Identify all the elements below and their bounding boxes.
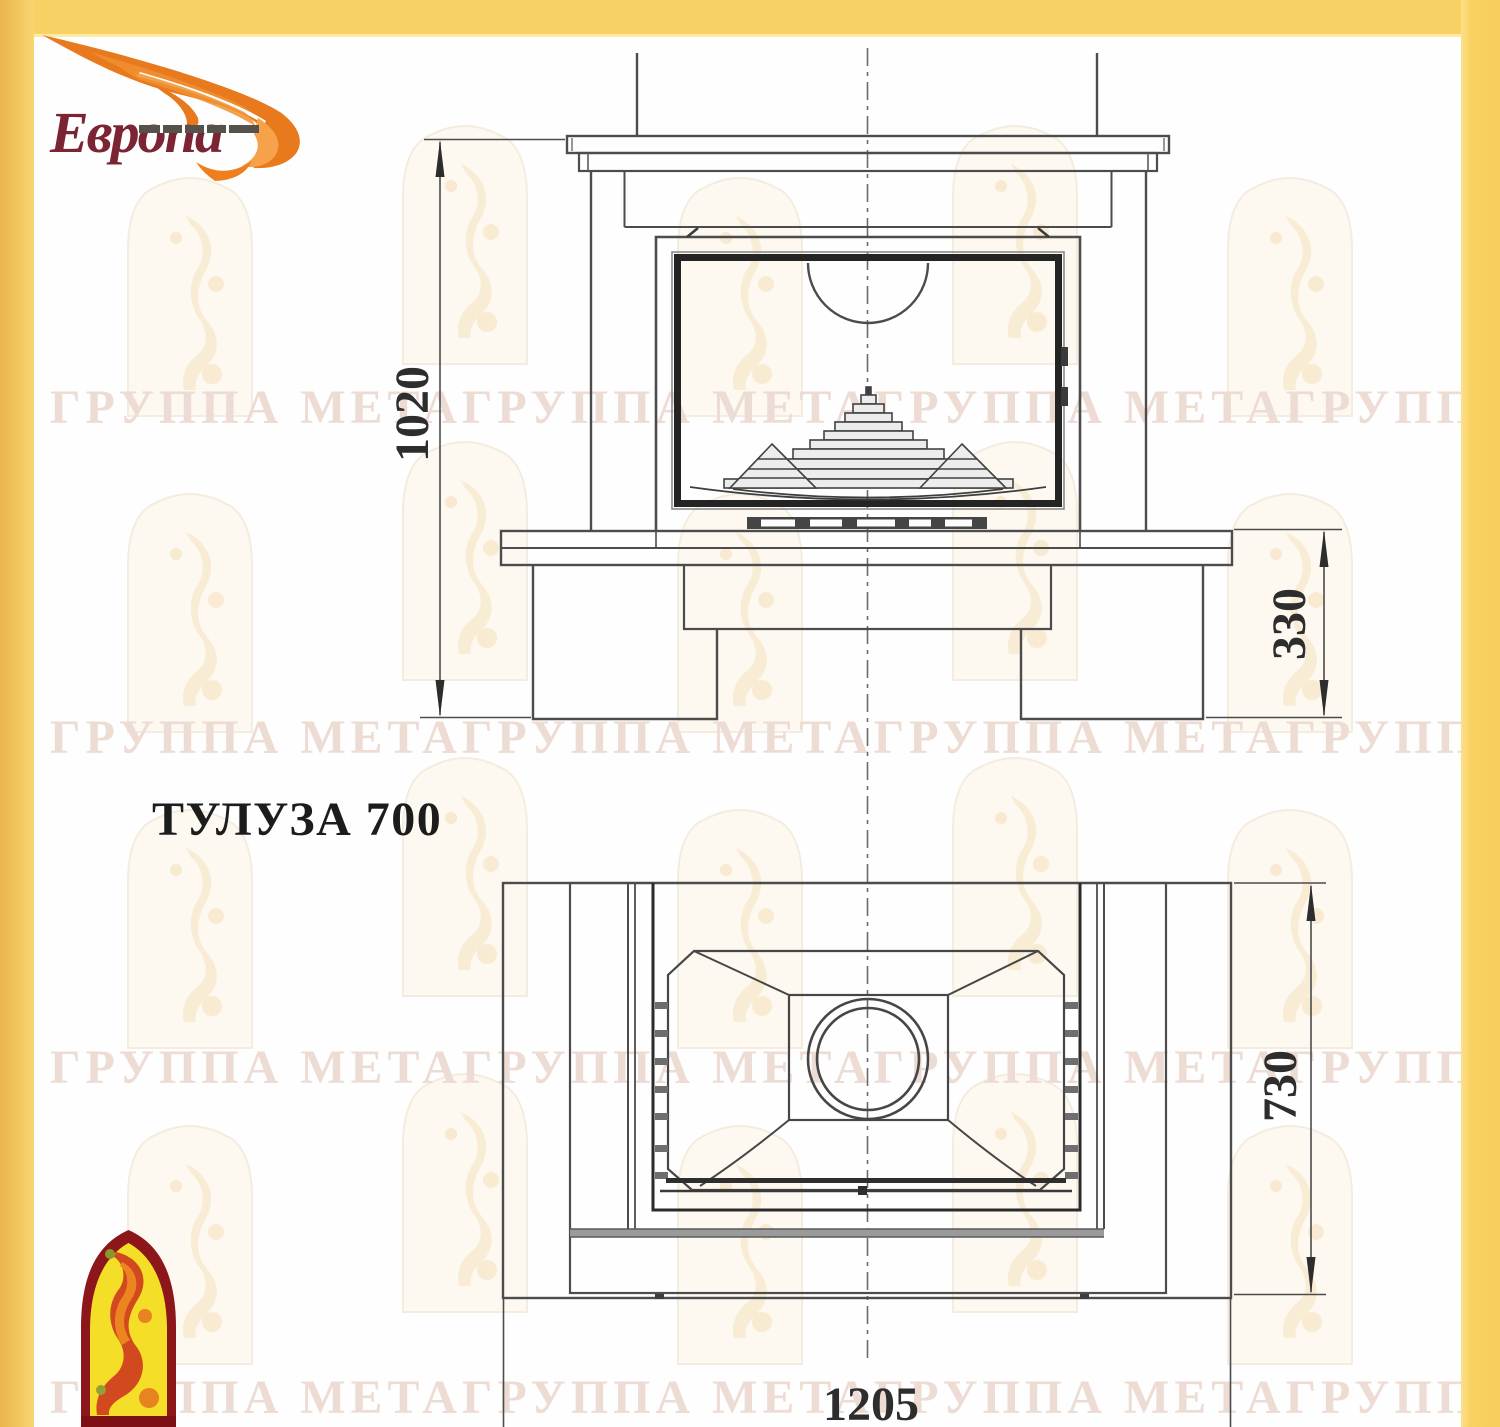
svg-text:730: 730: [1254, 1050, 1307, 1122]
svg-text:ГРУППА МЕТАГРУППА МЕТАГРУППА М: ГРУППА МЕТАГРУППА МЕТАГРУППА МЕТАГРУППА …: [50, 1371, 1500, 1424]
svg-text:ГРУППА МЕТАГРУППА МЕТАГРУППА М: ГРУППА МЕТАГРУППА МЕТАГРУППА МЕТАГРУППА …: [50, 711, 1500, 764]
svg-text:ТУЛУЗА 700: ТУЛУЗА 700: [152, 793, 442, 846]
svg-text:330: 330: [1263, 588, 1316, 660]
svg-text:1020: 1020: [386, 366, 439, 462]
svg-text:1205: 1205: [823, 1378, 919, 1427]
svg-text:ГРУППА МЕТАГРУППА МЕТАГРУППА М: ГРУППА МЕТАГРУППА МЕТАГРУППА МЕТАГРУППА …: [50, 381, 1500, 434]
